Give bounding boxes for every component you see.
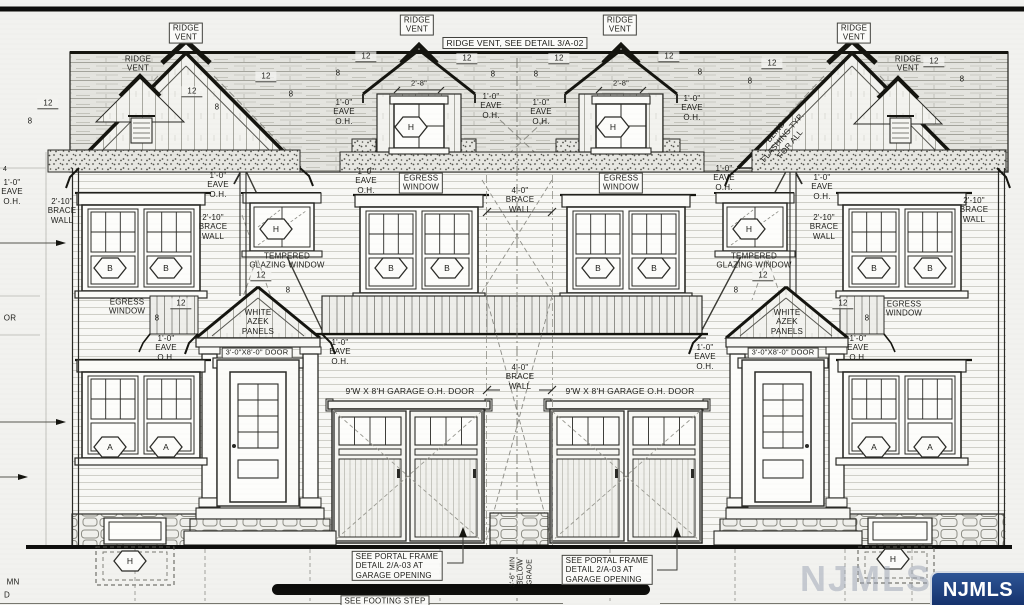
hexagon-letter: B [595,263,601,273]
hexagon-letter: H [127,556,133,566]
hexagon-letter: B [107,263,113,273]
hexagon-letter: B [388,263,394,273]
redaction-bar [272,584,650,595]
blueprint-page: BBBBBBBBAAAAHHHHHH RIDGE VENTRIDGE VENTR… [0,0,1024,605]
hexagon-letter: H [610,122,616,132]
hexagon-letter: H [746,224,752,234]
hexagon-letter: H [408,122,414,132]
hexagon-letter: B [163,263,169,273]
hexagon-letter: B [444,263,450,273]
stone-base [72,508,1004,547]
njmls-ghost-watermark: NJMLS [800,558,932,600]
hexagon-letter: B [927,263,933,273]
njmls-logo-text: NJMLS [943,579,1013,602]
hexagon-letter: B [871,263,877,273]
njmls-logo-badge: NJMLS [930,571,1024,605]
hexagon-letter: B [651,263,657,273]
hexagon-letter: A [927,442,933,452]
hexagon-letter: A [107,442,113,452]
hexagon-letter: A [871,442,877,452]
elevation-drawing: BBBBBBBBAAAAHHHHHH [0,0,1024,605]
hexagon-letter: A [163,442,169,452]
hexagon-letter: H [273,224,279,234]
